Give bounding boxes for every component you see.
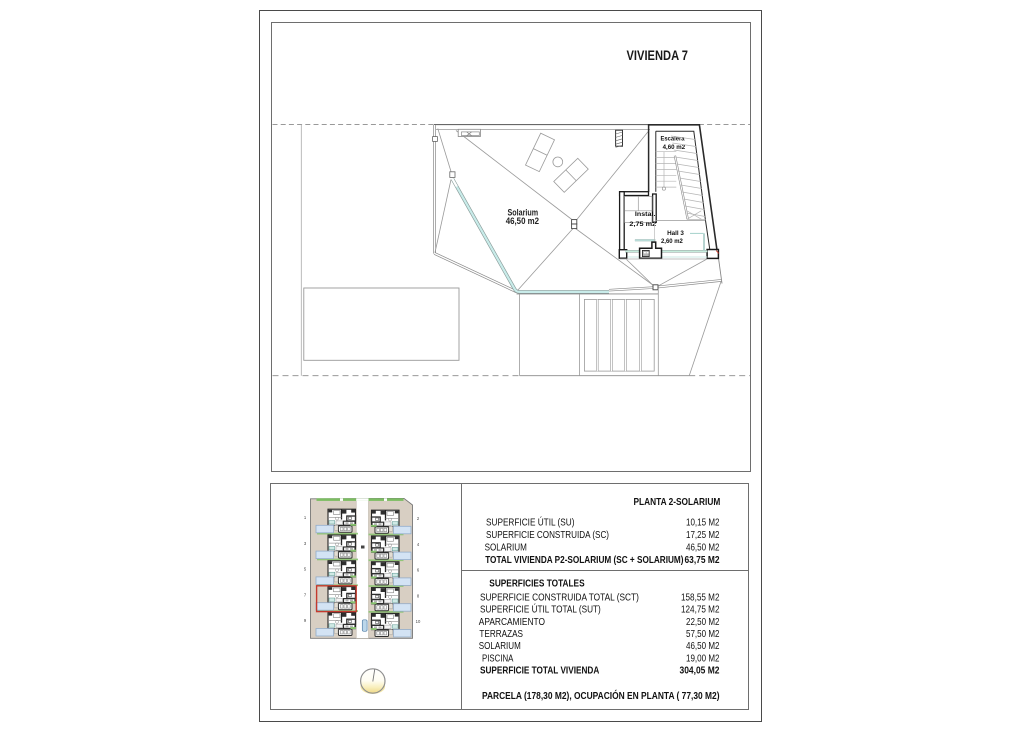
svg-text:PARCELA (178,30 M2), OCUPACIÓ: PARCELA (178,30 M2), OCUPACIÓN EN PLANTA… — [482, 689, 720, 702]
svg-text:SUPERFICIE TOTAL VIVIENDA: SUPERFICIE TOTAL VIVIENDA — [480, 665, 600, 677]
svg-text:PISCINA: PISCINA — [482, 653, 513, 665]
svg-text:4: 4 — [417, 542, 420, 547]
svg-text:22,50 M2: 22,50 M2 — [686, 616, 720, 628]
svg-text:46,50 m2: 46,50 m2 — [506, 216, 539, 226]
svg-text:10,15 M2: 10,15 M2 — [686, 517, 720, 529]
svg-text:19,00 M2: 19,00 M2 — [686, 653, 720, 665]
svg-text:1: 1 — [304, 515, 307, 520]
svg-text:SUPERFICIE ÚTIL TOTAL (SUT): SUPERFICIE ÚTIL TOTAL (SUT) — [480, 603, 601, 616]
svg-text:7: 7 — [304, 592, 307, 597]
svg-text:57,50 M2: 57,50 M2 — [686, 628, 720, 640]
svg-text:Instal.: Instal. — [635, 211, 656, 218]
svg-text:VIVIENDA 7: VIVIENDA 7 — [627, 47, 689, 63]
svg-text:SUPERFICIE CONSTRUIDA TOTAL (S: SUPERFICIE CONSTRUIDA TOTAL (SCT) — [480, 592, 639, 604]
svg-text:TOTAL VIVIENDA P2-SOLARIUM (SC: TOTAL VIVIENDA P2-SOLARIUM (SC + SOLARIU… — [485, 554, 683, 566]
svg-text:SOLARIUM: SOLARIUM — [485, 542, 527, 554]
svg-text:304,05 M2: 304,05 M2 — [680, 665, 720, 677]
svg-text:46,50 M2: 46,50 M2 — [686, 542, 720, 554]
svg-text:2,60 m2: 2,60 m2 — [661, 238, 683, 245]
svg-text:PLANTA 2-SOLARIUM: PLANTA 2-SOLARIUM — [634, 496, 721, 508]
svg-text:8: 8 — [417, 593, 420, 598]
svg-text:124,75 M2: 124,75 M2 — [681, 604, 720, 616]
svg-text:SUPERFICIES TOTALES: SUPERFICIES TOTALES — [489, 578, 584, 590]
svg-text:6: 6 — [417, 568, 420, 573]
svg-text:46,50 M2: 46,50 M2 — [686, 640, 720, 652]
svg-text:Hall 3: Hall 3 — [667, 230, 684, 237]
svg-text:9: 9 — [304, 618, 307, 623]
svg-text:63,75 M2: 63,75 M2 — [685, 554, 720, 566]
svg-text:5: 5 — [304, 567, 307, 572]
svg-text:SUPERFICIE ÚTIL (SU): SUPERFICIE ÚTIL (SU) — [486, 516, 575, 529]
svg-text:10: 10 — [416, 619, 421, 624]
svg-text:SOLARIUM: SOLARIUM — [479, 640, 521, 652]
svg-text:2,75 m2: 2,75 m2 — [629, 221, 656, 228]
svg-text:APARCAMIENTO: APARCAMIENTO — [479, 616, 545, 628]
svg-text:TERRAZAS: TERRAZAS — [479, 628, 523, 640]
svg-text:3: 3 — [304, 541, 307, 546]
svg-text:158,55 M2: 158,55 M2 — [681, 592, 720, 604]
svg-text:SUPERFICIE CONSTRUIDA (SC): SUPERFICIE CONSTRUIDA (SC) — [486, 529, 609, 541]
svg-text:17,25 M2: 17,25 M2 — [686, 529, 720, 541]
svg-text:2: 2 — [417, 516, 420, 521]
